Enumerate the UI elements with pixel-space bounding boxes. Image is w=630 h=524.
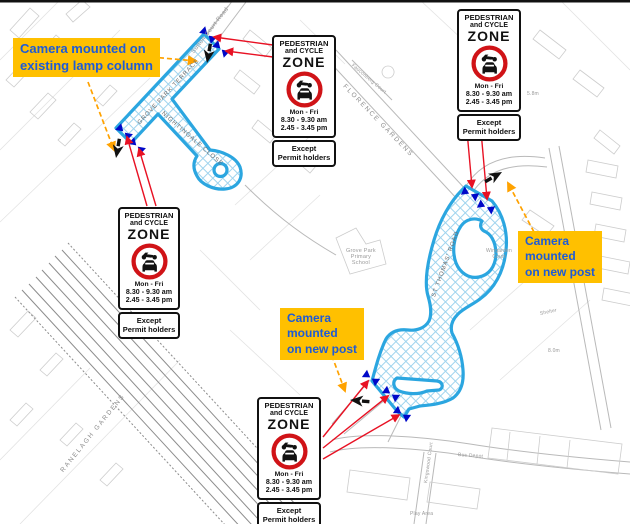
sign-time-pm: 2.45 - 3.45 pm	[121, 296, 177, 305]
map-frame-top	[0, 0, 630, 3]
sign-line-pedestrian: PEDESTRIAN	[460, 13, 518, 22]
sign-except: Except	[259, 506, 319, 515]
annotation-camera-new-post-right: Camera mounted on new post	[518, 231, 602, 283]
no-motor-vehicles-icon	[271, 433, 308, 470]
zone-st-thomas-road	[372, 186, 506, 417]
sign-time-am: 8.30 - 9.30 am	[460, 90, 518, 99]
sign-time-pm: 2.45 - 3.45 pm	[460, 98, 518, 107]
sign-days: Mon - Fri	[121, 281, 177, 288]
sign-line-zone: ZONE	[460, 29, 518, 44]
sign-time-am: 8.30 - 9.30 am	[121, 288, 177, 297]
map-label-wingarden-court: Wingarden Court	[486, 248, 512, 260]
no-motor-vehicles-icon	[286, 71, 323, 108]
sign-days: Mon - Fri	[460, 83, 518, 90]
sign-time-am: 8.30 - 9.30 am	[260, 478, 318, 487]
pedestrian-cycle-zone-sign: PEDESTRIAN and CYCLE ZONE Mon - Fri 8.30…	[257, 397, 321, 524]
sign-time-pm: 2.45 - 3.45 pm	[260, 486, 318, 495]
map-canvas: Sutton Court Road Fauconberg Court FLORE…	[0, 0, 630, 524]
sign-days: Mon - Fri	[260, 471, 318, 478]
sign-time-pm: 2.45 - 3.45 pm	[275, 124, 333, 133]
sign-line-zone: ZONE	[260, 417, 318, 432]
sign-permit-holders: Permit holders	[120, 325, 178, 334]
no-motor-vehicles-icon	[471, 45, 508, 82]
sign-permit-holders: Permit holders	[259, 515, 319, 524]
pedestrian-cycle-zone-sign: PEDESTRIAN and CYCLE ZONE Mon - Fri 8.30…	[118, 207, 180, 339]
map-label-grove-park-primary-school: Grove Park Primary School	[346, 248, 376, 266]
sign-line-zone: ZONE	[275, 55, 333, 70]
sign-permit-holders: Permit holders	[459, 127, 519, 136]
no-motor-vehicles-icon	[131, 243, 168, 280]
camera-icon	[111, 138, 125, 159]
pedestrian-cycle-zone-sign: PEDESTRIAN and CYCLE ZONE Mon - Fri 8.30…	[272, 35, 336, 167]
sign-days: Mon - Fri	[275, 109, 333, 116]
map-label-spot-height: 8.0m	[548, 348, 560, 354]
map-label-play-area: Play Area	[410, 511, 433, 517]
sign-line-pedestrian: PEDESTRIAN	[260, 401, 318, 410]
sign-time-am: 8.30 - 9.30 am	[275, 116, 333, 125]
sign-permit-holders: Permit holders	[274, 153, 334, 162]
pedestrian-cycle-zone-sign: PEDESTRIAN and CYCLE ZONE Mon - Fri 8.30…	[457, 9, 521, 141]
sign-line-pedestrian: PEDESTRIAN	[275, 39, 333, 48]
annotation-camera-new-post-bottom: Camera mounted on new post	[280, 308, 364, 360]
map-label-spot-height: 5.8m	[527, 91, 539, 97]
zone-sign-mid-left: PEDESTRIAN and CYCLE ZONE Mon - Fri 8.30…	[118, 207, 180, 339]
zone-sign-top-right: PEDESTRIAN and CYCLE ZONE Mon - Fri 8.30…	[457, 9, 521, 141]
sign-line-zone: ZONE	[121, 227, 177, 242]
sign-except: Except	[459, 118, 519, 127]
sign-except: Except	[120, 316, 178, 325]
sign-line-pedestrian: PEDESTRIAN	[121, 211, 177, 220]
annotation-camera-lamp-column: Camera mounted on existing lamp column	[13, 38, 160, 77]
sign-except: Except	[274, 144, 334, 153]
zone-sign-top-center: PEDESTRIAN and CYCLE ZONE Mon - Fri 8.30…	[272, 35, 336, 167]
camera-icon	[350, 395, 370, 408]
zone-sign-bottom-center: PEDESTRIAN and CYCLE ZONE Mon - Fri 8.30…	[257, 397, 321, 524]
